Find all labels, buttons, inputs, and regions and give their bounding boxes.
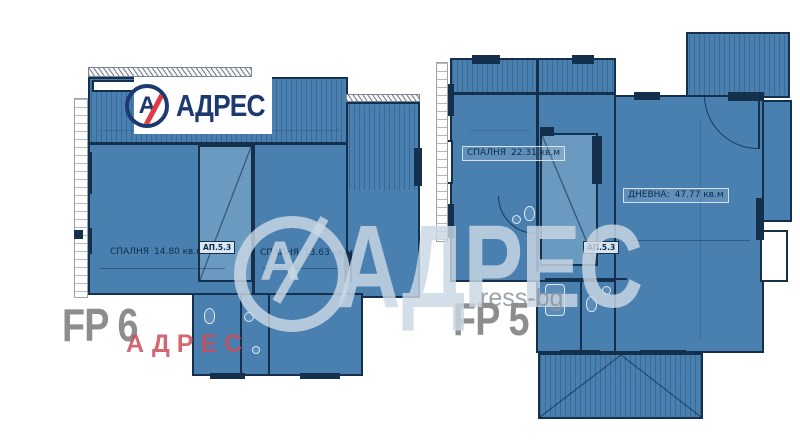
watermark-pink-brand: АДРЕС	[126, 330, 249, 359]
shaft	[760, 230, 788, 282]
room-label-living: ДНЕВНА:47.77 кв.м	[623, 188, 729, 203]
partition-wall	[545, 278, 627, 280]
roof-stripes	[689, 35, 787, 95]
apartment-tag: АП.5.3	[583, 241, 619, 254]
room-name: СПАЛНЯ	[110, 247, 149, 257]
wall-segment	[756, 198, 764, 240]
roof-stripes	[349, 105, 417, 190]
room-label-bedroom-1: СПАЛНЯ14.80 кв.м	[110, 247, 198, 258]
apartment-tag: АП.5.3	[199, 241, 235, 254]
wall-segment	[540, 127, 554, 136]
window	[572, 55, 594, 64]
room-area: 47.77 кв.м	[675, 190, 724, 200]
window	[472, 55, 500, 64]
door-leaf	[758, 95, 760, 149]
balcony-strip	[74, 98, 88, 298]
roof-hatch-strip	[346, 94, 420, 102]
wall-segment	[210, 373, 245, 379]
wall-segment	[414, 148, 422, 186]
room-area: 22.31 кв.м	[511, 148, 560, 158]
dimension-line	[630, 240, 750, 241]
logo-circle-a-icon: А	[125, 84, 169, 128]
brand-logo: А АДРЕС	[134, 77, 272, 134]
sink-icon	[252, 346, 260, 354]
room-area: 14.80 кв.м	[154, 247, 203, 257]
dimension-line	[100, 268, 225, 269]
room-name: СПАЛНЯ	[467, 148, 506, 158]
dimension-line	[700, 120, 701, 340]
room-label-bedroom: СПАЛНЯ22.31 кв.м	[462, 146, 565, 161]
roof-ridge	[621, 355, 702, 417]
roof-hatch-strip	[88, 67, 252, 77]
exterior-stairs	[762, 100, 792, 222]
wall-segment	[300, 373, 340, 379]
sink-icon	[602, 286, 611, 295]
floorplan-sheet: СПАЛНЯ14.80 кв.м АП.5.3 СПАЛНЯ13.63 кв.м…	[0, 0, 800, 442]
balcony-strip	[436, 62, 448, 242]
interior-wall	[452, 92, 614, 95]
interior-wall	[536, 60, 539, 272]
sink-icon	[512, 215, 521, 224]
toilet-icon	[204, 308, 215, 324]
toilet-icon	[524, 206, 535, 221]
watermark-url-fragment: ress-bg	[480, 284, 563, 313]
wall-segment	[592, 136, 602, 184]
toilet-icon	[586, 296, 597, 312]
terrace-bottom	[538, 353, 703, 419]
dimension-line	[470, 130, 530, 131]
dimension-marker	[74, 230, 83, 239]
room-name: ДНЕВНА:	[628, 190, 670, 200]
roof-ridge	[540, 355, 621, 417]
roof-stripes	[452, 60, 614, 92]
logo-wordmark: АДРЕС	[176, 88, 265, 124]
partition-wall	[580, 282, 582, 352]
window	[634, 92, 660, 100]
